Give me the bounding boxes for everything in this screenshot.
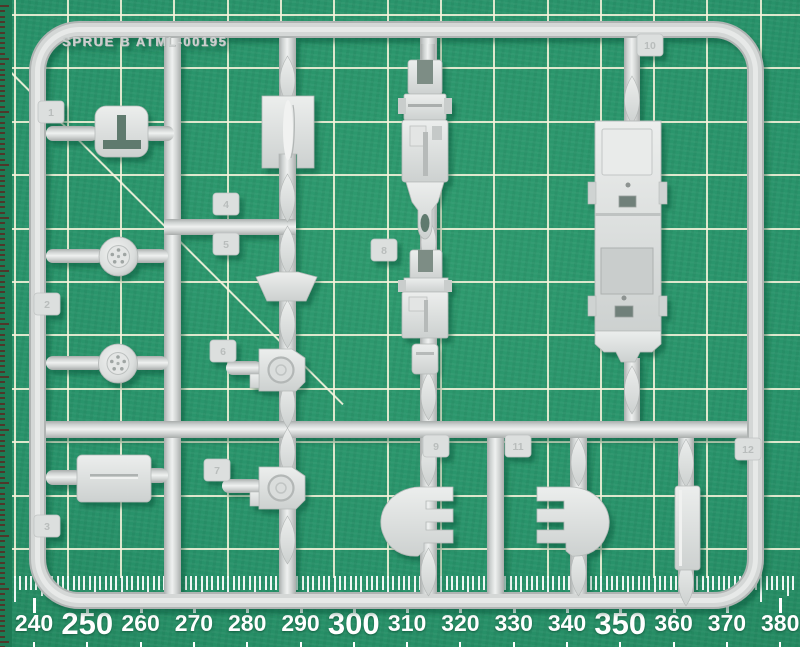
- part-fin-panel: [262, 96, 314, 168]
- sprue-tab-5: 5: [213, 233, 239, 255]
- sprue-label: SPRUE B ATML-00195: [62, 34, 227, 49]
- sprue-tab-1: 1: [38, 101, 64, 123]
- sprue-tab-6: 6: [210, 340, 236, 362]
- part-hull-chassis: [588, 121, 667, 362]
- sprue-tab-number: 4: [223, 199, 229, 211]
- sprue-tab-number: 8: [381, 245, 387, 257]
- sprue-tab-number: 9: [433, 441, 439, 453]
- part-bulkhead-panel: [95, 106, 148, 157]
- sprue-tab-number: 3: [44, 521, 50, 533]
- part-axle-strip: [675, 486, 700, 570]
- sprue-tab-number: 7: [214, 465, 220, 477]
- sprue-tab-number: 12: [742, 444, 754, 456]
- sprue-tab-3: 3: [34, 515, 60, 537]
- sprue-tab-number: 5: [223, 239, 229, 251]
- sprue-tab-10: 10: [637, 34, 663, 56]
- sprue-tab-number: 1: [48, 107, 54, 119]
- sprue-tab-9: 9: [423, 435, 449, 457]
- sprue-tab-4: 4: [213, 193, 239, 215]
- cutting-mat-photo: 2402502602702802903003103203303403503603…: [0, 0, 800, 647]
- sprue-tab-12: 12: [735, 438, 761, 460]
- sprue-tab-2: 2: [34, 293, 60, 315]
- part-windscreen-frame: [256, 272, 317, 301]
- part-track-guard-left: [381, 487, 453, 556]
- sprue-tab-number: 10: [644, 40, 656, 52]
- sprue-tab-number: 11: [512, 441, 523, 453]
- part-suspension-lower: [398, 250, 452, 374]
- part-road-wheel: [99, 237, 138, 276]
- sprue-tab-11: 11: [505, 435, 531, 457]
- part-fuel-tank-half: [77, 455, 151, 502]
- part-suspension-upper: [398, 60, 452, 239]
- plastic-sprue: 123456789101112 SPRUE B ATML-00195 SPRUE…: [0, 0, 800, 647]
- sprue-tab-7: 7: [204, 459, 230, 481]
- part-road-wheel: [99, 344, 138, 383]
- part-track-guard-right: [537, 487, 609, 556]
- sprue-tab-8: 8: [371, 239, 397, 261]
- sprue-tab-number: 2: [44, 299, 50, 311]
- sprue-tab-number: 6: [220, 346, 226, 358]
